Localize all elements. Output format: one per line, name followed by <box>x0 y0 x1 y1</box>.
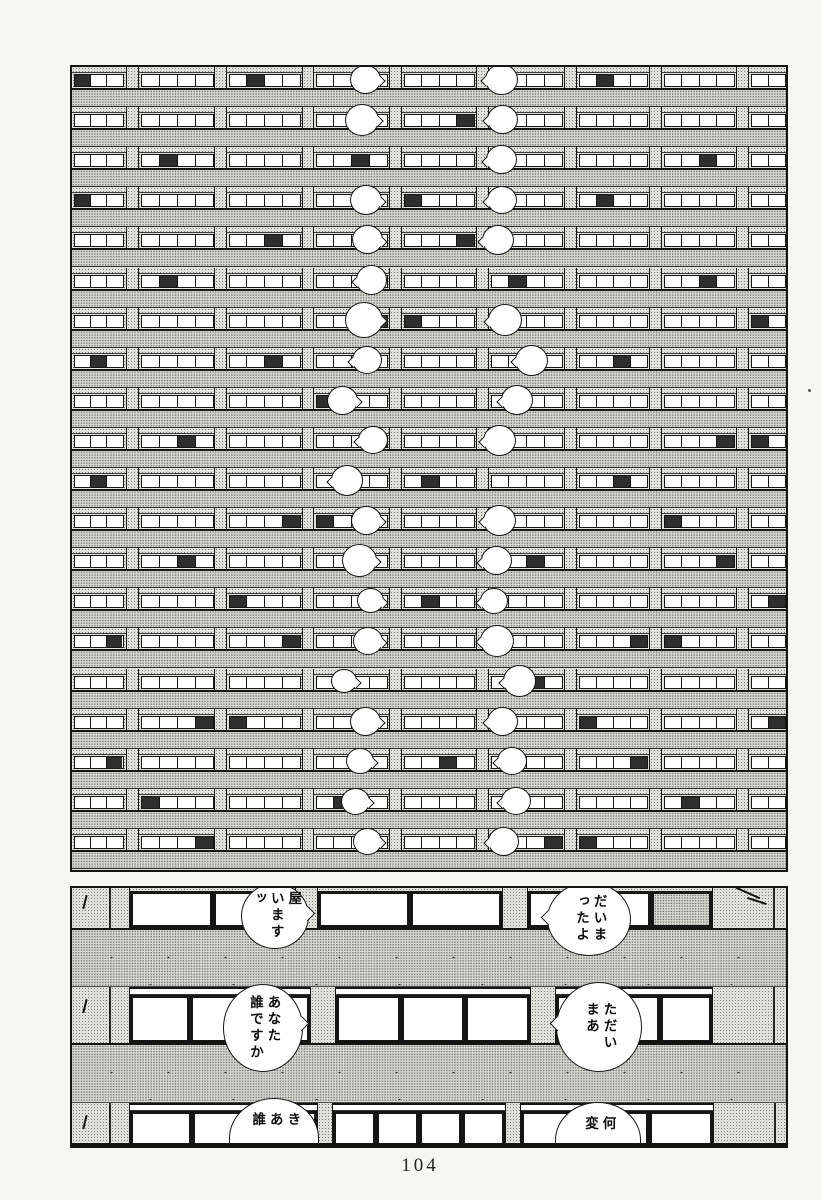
window-pane <box>282 797 300 808</box>
window-pane <box>421 476 439 487</box>
window-pane <box>544 636 562 647</box>
window-row <box>72 594 786 609</box>
bay-divider <box>649 749 662 770</box>
window-pane <box>264 757 282 768</box>
window-pane <box>106 235 122 246</box>
bay-divider <box>389 227 402 248</box>
window-pane <box>106 556 122 567</box>
bay-divider <box>564 348 577 369</box>
window-pane <box>177 636 195 647</box>
window-pane <box>159 717 177 728</box>
window-pane <box>752 516 768 527</box>
window-pane <box>768 276 785 287</box>
window-pane <box>142 596 159 607</box>
window-strip <box>74 635 124 648</box>
window-pane <box>333 155 351 166</box>
window-strip <box>74 315 124 328</box>
window-group <box>336 995 530 1043</box>
bay-divider <box>214 348 227 369</box>
bay-divider <box>736 308 749 329</box>
window-pane <box>421 396 439 407</box>
window-pane <box>699 195 717 206</box>
window-strip <box>579 475 648 488</box>
window-pane <box>456 757 474 768</box>
window-row <box>72 233 786 248</box>
window-pane <box>264 797 282 808</box>
window-strip <box>751 154 786 167</box>
window-pane <box>716 436 734 447</box>
window-pane <box>681 316 699 327</box>
window-pane <box>613 235 630 246</box>
window-strip <box>664 475 735 488</box>
bay-divider <box>302 428 314 449</box>
window-strip <box>751 234 786 247</box>
window-pane <box>699 556 717 567</box>
window-pane <box>282 155 300 166</box>
window-pane <box>106 436 122 447</box>
window-pane <box>456 356 474 367</box>
window-pane <box>142 316 159 327</box>
bay-divider <box>564 468 577 489</box>
window-pane <box>90 596 106 607</box>
window-pane <box>159 316 177 327</box>
bay-divider <box>302 508 314 529</box>
window-strip <box>579 836 648 849</box>
window-pane <box>699 276 717 287</box>
window-pane <box>752 476 768 487</box>
window-pane <box>317 797 334 808</box>
window-pane <box>246 516 264 527</box>
window-row <box>72 193 786 208</box>
window-pane <box>230 636 247 647</box>
window-pane <box>456 797 474 808</box>
bay-divider <box>126 428 139 449</box>
window-pane <box>282 115 300 126</box>
bay-divider <box>736 67 749 88</box>
window-pane <box>630 235 647 246</box>
bay-divider <box>389 428 402 449</box>
window-pane <box>195 396 213 407</box>
window-pane <box>699 75 717 86</box>
window-pane <box>613 596 630 607</box>
window-pane <box>421 677 439 688</box>
window-pane <box>159 476 177 487</box>
window-pane <box>665 677 682 688</box>
window-pane <box>282 837 300 848</box>
window-pane <box>456 235 474 246</box>
window-pane <box>75 316 90 327</box>
bay-divider <box>214 187 227 208</box>
window-strip <box>664 676 735 689</box>
window-pane <box>246 717 264 728</box>
window-row <box>72 795 786 810</box>
window-pane <box>369 396 387 407</box>
window-strip <box>579 114 648 127</box>
window-pane <box>596 596 613 607</box>
window-pane <box>230 677 247 688</box>
speech-balloon <box>487 186 517 214</box>
bay-divider <box>126 548 139 569</box>
window-pane <box>75 556 90 567</box>
window-strip <box>404 234 475 247</box>
window-row <box>72 835 786 850</box>
window-pane <box>596 516 613 527</box>
window-pane <box>768 677 785 688</box>
bay-divider <box>736 147 749 168</box>
bay-divider <box>649 669 662 690</box>
window-pane <box>699 316 717 327</box>
window-strip <box>751 555 786 568</box>
window-pane <box>282 235 300 246</box>
window-strip <box>141 716 214 729</box>
bay-divider <box>389 308 402 329</box>
window-pane <box>142 516 159 527</box>
window-row <box>72 634 786 649</box>
window-pane <box>142 75 159 86</box>
window-pane <box>421 235 439 246</box>
window-pane <box>439 195 457 206</box>
window-pane <box>159 155 177 166</box>
bay-divider <box>389 187 402 208</box>
bay-divider <box>389 107 402 128</box>
facade-floor <box>72 147 786 187</box>
window-pane <box>90 797 106 808</box>
window-pane <box>768 195 785 206</box>
window-pane <box>630 677 647 688</box>
window-strip <box>751 756 786 769</box>
window-pane <box>142 276 159 287</box>
window-pane <box>681 115 699 126</box>
window-strip <box>141 435 214 448</box>
window-strip <box>664 796 735 809</box>
window-pane <box>333 596 351 607</box>
window-strip <box>404 515 475 528</box>
window-strip <box>491 475 563 488</box>
bay-divider <box>214 308 227 329</box>
window-pane <box>264 837 282 848</box>
window-pane <box>90 276 106 287</box>
window-pane <box>230 837 247 848</box>
window-strip <box>664 194 735 207</box>
window-pane <box>544 195 562 206</box>
window-pane <box>177 195 195 206</box>
window-pane <box>681 476 699 487</box>
window-pane <box>282 757 300 768</box>
window-strip <box>404 275 475 288</box>
window-pane <box>264 677 282 688</box>
window-pane <box>580 757 596 768</box>
window-pane <box>264 155 282 166</box>
window-pane <box>544 596 562 607</box>
window-pane <box>665 757 682 768</box>
window-pane <box>596 195 613 206</box>
window-strip <box>664 635 735 648</box>
window-pane <box>681 717 699 728</box>
window-pane <box>456 717 474 728</box>
bay-divider <box>214 709 227 730</box>
window-pane <box>195 717 213 728</box>
window-pane <box>246 476 264 487</box>
window-pane <box>456 316 474 327</box>
window-pane <box>264 75 282 86</box>
wall-column-right <box>712 888 787 928</box>
window-pane <box>439 75 457 86</box>
bay-divider <box>214 227 227 248</box>
window-pane <box>752 115 768 126</box>
window-pane <box>106 596 122 607</box>
floor-slab <box>72 128 786 147</box>
window-strip <box>404 74 475 87</box>
wall-column-right <box>713 1103 787 1146</box>
bay-divider <box>564 67 577 88</box>
speech-balloon <box>350 707 381 736</box>
window-pane <box>75 75 90 86</box>
window-pane <box>716 636 734 647</box>
window-strip <box>229 114 301 127</box>
bay-divider <box>126 468 139 489</box>
bay-divider <box>302 789 314 810</box>
window-strip <box>229 796 301 809</box>
window-pane <box>596 757 613 768</box>
speech-balloon <box>515 345 548 376</box>
window-pane <box>195 316 213 327</box>
floor-slab <box>72 248 786 267</box>
bay-divider <box>649 268 662 289</box>
window-pane <box>317 636 334 647</box>
window-pane <box>580 75 596 86</box>
window-pane <box>526 717 544 728</box>
bay-divider <box>389 548 402 569</box>
window-strip <box>404 355 475 368</box>
bay-divider <box>302 67 314 88</box>
bay-divider <box>476 669 489 690</box>
floor-slab <box>72 770 786 789</box>
window-pane <box>142 115 159 126</box>
window-pane <box>177 356 195 367</box>
window-strip <box>74 475 124 488</box>
window-pane <box>665 516 682 527</box>
speech-balloon <box>350 65 381 94</box>
speech-balloon <box>327 386 358 415</box>
window-pane <box>230 436 247 447</box>
window-pane <box>544 797 562 808</box>
window-pane <box>142 636 159 647</box>
window-pane <box>544 316 562 327</box>
window-pane <box>699 155 717 166</box>
window-pane <box>264 235 282 246</box>
bay-divider <box>389 709 402 730</box>
window-pane <box>369 677 387 688</box>
bay-divider <box>564 107 577 128</box>
window-row <box>72 314 786 329</box>
window-strip <box>141 796 214 809</box>
bay-divider <box>214 428 227 449</box>
window-pane <box>90 436 106 447</box>
window-pane <box>90 556 106 567</box>
window-pane <box>282 436 300 447</box>
window-pane <box>699 677 717 688</box>
window-row <box>72 274 786 289</box>
window-row <box>72 354 786 369</box>
window-pane <box>526 195 544 206</box>
window-pane <box>665 155 682 166</box>
bay-divider <box>736 428 749 449</box>
bay-divider <box>214 468 227 489</box>
window-pane <box>75 677 90 688</box>
window-pane <box>716 75 734 86</box>
window-pane <box>317 155 334 166</box>
window-pane <box>405 516 422 527</box>
window-pane <box>333 636 351 647</box>
bay-divider <box>476 388 489 409</box>
window-pane <box>768 235 785 246</box>
window-pane <box>142 476 159 487</box>
bay-divider <box>736 227 749 248</box>
window-pane <box>177 837 195 848</box>
window-pane <box>317 356 334 367</box>
window-pane <box>142 677 159 688</box>
window-pane <box>106 75 122 86</box>
window-row <box>72 73 786 88</box>
bay-divider <box>389 147 402 168</box>
window-strip <box>229 234 301 247</box>
window-pane <box>246 436 264 447</box>
speech-balloon <box>497 747 527 775</box>
window-pane <box>526 316 544 327</box>
window-pane <box>665 596 682 607</box>
window-row <box>72 113 786 128</box>
window-pane <box>317 276 334 287</box>
bay-divider <box>389 588 402 609</box>
window-pane <box>613 757 630 768</box>
wall-divider <box>505 1103 521 1146</box>
window-pane <box>665 316 682 327</box>
window-pane <box>465 1114 502 1143</box>
window-strip <box>664 234 735 247</box>
window-pane <box>456 155 474 166</box>
window-pane <box>681 757 699 768</box>
window-pane <box>246 596 264 607</box>
window-pane <box>177 436 195 447</box>
window-pane <box>230 195 247 206</box>
window-pane <box>282 636 300 647</box>
window-pane <box>159 75 177 86</box>
window-pane <box>75 837 90 848</box>
bay-divider <box>126 588 139 609</box>
window-strip <box>316 154 388 167</box>
speech-balloon <box>503 665 536 696</box>
window-pane <box>716 396 734 407</box>
window-pane <box>439 797 457 808</box>
window-pane <box>456 837 474 848</box>
window-pane <box>333 75 351 86</box>
window-pane <box>405 155 422 166</box>
facade-floor <box>72 709 786 749</box>
window-strip <box>141 676 214 689</box>
window-pane <box>716 115 734 126</box>
window-pane <box>405 556 422 567</box>
window-pane <box>768 436 785 447</box>
window-pane <box>333 516 351 527</box>
window-strip <box>74 435 124 448</box>
window-pane <box>230 757 247 768</box>
window-strip <box>141 315 214 328</box>
window-strip <box>664 74 735 87</box>
window-pane <box>177 115 195 126</box>
speech-balloon <box>351 506 382 535</box>
window-strip <box>751 194 786 207</box>
window-strip <box>229 635 301 648</box>
window-strip <box>664 595 735 608</box>
window-pane <box>90 316 106 327</box>
window-pane <box>613 155 630 166</box>
bay-divider <box>476 749 489 770</box>
page-number: 104 <box>384 1155 456 1177</box>
window-pane <box>195 155 213 166</box>
floor-slab <box>72 489 786 508</box>
window-pane <box>336 1114 373 1143</box>
window-row <box>72 394 786 409</box>
window-pane <box>665 797 682 808</box>
window-pane <box>630 155 647 166</box>
window-pane <box>177 155 195 166</box>
window-pane <box>630 636 647 647</box>
window-pane <box>663 998 709 1040</box>
window-pane <box>456 636 474 647</box>
window-pane <box>405 757 422 768</box>
window-pane <box>630 757 647 768</box>
window-pane <box>106 276 122 287</box>
window-strip <box>404 716 475 729</box>
concrete-slab-band <box>72 930 786 987</box>
window-pane <box>264 276 282 287</box>
window-strip <box>229 676 301 689</box>
bay-divider <box>476 468 489 489</box>
window-pane <box>230 396 247 407</box>
window-pane <box>681 396 699 407</box>
window-pane <box>580 195 596 206</box>
window-pane <box>230 717 247 728</box>
window-pane <box>665 195 682 206</box>
window-strip <box>664 716 735 729</box>
window-pane <box>768 757 785 768</box>
facade-floor <box>72 829 786 869</box>
window-strip <box>579 555 648 568</box>
window-pane <box>630 316 647 327</box>
window-pane <box>159 516 177 527</box>
window-strip <box>141 515 214 528</box>
window-pane <box>526 596 544 607</box>
window-pane <box>142 797 159 808</box>
bay-divider <box>736 107 749 128</box>
window-pane <box>246 677 264 688</box>
window-strip <box>579 635 648 648</box>
bubble-text: 何 変 <box>580 1116 615 1132</box>
facade-floor <box>72 308 786 348</box>
window-pane <box>526 75 544 86</box>
bay-divider <box>564 388 577 409</box>
window-strip <box>141 355 214 368</box>
window-pane <box>177 757 195 768</box>
window-pane <box>369 155 387 166</box>
bay-divider <box>649 628 662 649</box>
window-pane <box>90 115 106 126</box>
window-pane <box>526 636 544 647</box>
window-strip <box>664 836 735 849</box>
wall-divider <box>530 987 556 1043</box>
window-pane <box>264 396 282 407</box>
speech-balloon <box>345 104 379 136</box>
